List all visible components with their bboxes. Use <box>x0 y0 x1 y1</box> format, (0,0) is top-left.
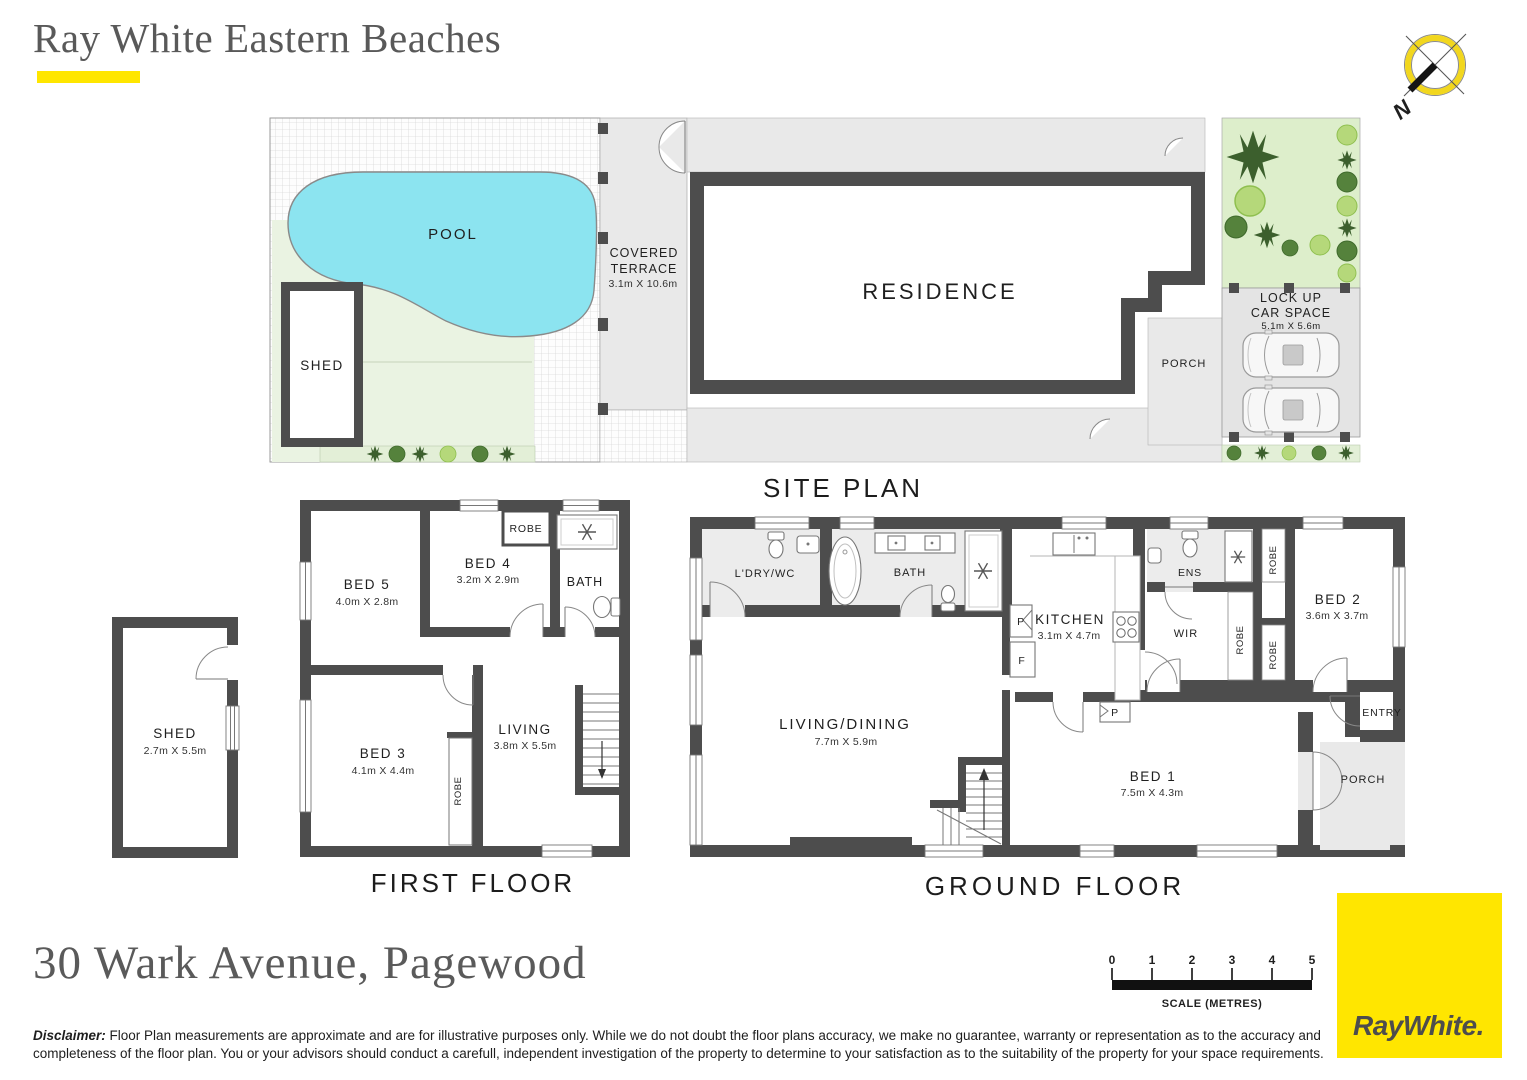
bed3-dims: 4.1m X 4.4m <box>352 765 415 777</box>
scale-tick: 5 <box>1309 953 1316 967</box>
shed-label: SHED <box>153 726 197 741</box>
site-yard: POOL SHED <box>270 118 600 462</box>
raywhite-logo-text: RayWhite. <box>1353 1010 1484 1042</box>
living-label: LIVING <box>498 722 551 737</box>
covered-terrace: COVERED TERRACE 3.1m X 10.6m <box>598 118 687 462</box>
bed2-dims: 3.6m X 3.7m <box>1306 610 1369 622</box>
car-icon <box>1243 385 1339 435</box>
car-icon <box>1243 330 1339 380</box>
pantry2-label: P <box>1111 707 1119 719</box>
scale-tick: 0 <box>1109 953 1116 967</box>
outbuilding-shed: SHED 2.7m X 5.5m <box>112 617 239 858</box>
scale-tick: 1 <box>1149 953 1156 967</box>
floorplan-page: Ray White Eastern Beaches N <box>0 0 1527 1080</box>
robe-label: ROBE <box>1235 626 1246 655</box>
ground-floor-walls <box>690 517 1405 857</box>
bed1-label: BED 1 <box>1130 769 1177 784</box>
fridge-label: F <box>1018 655 1025 667</box>
robe-label: ROBE <box>510 523 543 535</box>
kitchen-label: KITCHEN <box>1035 612 1105 627</box>
residence-label: RESIDENCE <box>862 279 1017 304</box>
kitchen-dims: 3.1m X 4.7m <box>1038 630 1101 642</box>
scale-tick: 2 <box>1189 953 1196 967</box>
living-dining-label: LIVING/DINING <box>779 716 911 733</box>
car-space: LOCK UP CAR SPACE 5.1m X 5.6m <box>1222 283 1360 462</box>
robe-label: ROBE <box>1268 546 1279 575</box>
raywhite-logo: RayWhite. <box>1337 893 1502 1058</box>
living-dims: 3.8m X 5.5m <box>494 740 557 752</box>
compass-icon: N <box>1390 18 1485 123</box>
carspace-label-2: CAR SPACE <box>1251 306 1331 320</box>
porch-label: PORCH <box>1341 774 1386 786</box>
ens-label: ENS <box>1178 567 1202 579</box>
brand-underline <box>37 71 140 83</box>
shed-dims: 2.7m X 5.5m <box>144 745 207 757</box>
vanity-icon <box>875 533 955 553</box>
disclaimer-label: Disclaimer: <box>33 1028 106 1043</box>
bed2-label: BED 2 <box>1315 592 1362 607</box>
ldry-label: L'DRY/WC <box>735 568 796 580</box>
terrace-label-2: TERRACE <box>611 262 678 276</box>
ground-floor-title: GROUND FLOOR <box>905 871 1205 902</box>
property-address: 30 Wark Avenue, Pagewood <box>33 936 587 990</box>
site-plan: POOL SHED <box>268 115 1363 465</box>
pantry-label: P <box>1017 616 1025 628</box>
robe-label: ROBE <box>1268 641 1279 670</box>
bed1-dims: 7.5m X 4.3m <box>1121 787 1184 799</box>
rear-garden <box>1222 118 1360 288</box>
toilet-icon <box>594 597 621 618</box>
site-shed-label: SHED <box>300 358 344 373</box>
bed5-dims: 4.0m X 2.8m <box>336 596 399 608</box>
first-floor-walls <box>300 500 630 857</box>
terrace-label-1: COVERED <box>610 246 679 260</box>
bed3-label: BED 3 <box>360 746 407 761</box>
living-dining-dims: 7.7m X 5.9m <box>815 736 878 748</box>
carspace-label-1: LOCK UP <box>1260 291 1322 305</box>
first-floor-plan: SHED 2.7m X 5.5m <box>95 495 650 900</box>
ground-floor-plan: L'DRY/WC BATH KITCHEN 3.1m X 4.7m P F P … <box>685 500 1415 870</box>
entry-label: ENTRY <box>1362 707 1401 719</box>
bath-label: BATH <box>567 575 603 589</box>
residence-block: RESIDENCE PORCH <box>687 118 1222 462</box>
first-floor-title: FIRST FLOOR <box>323 868 623 899</box>
scale-tick: 4 <box>1269 953 1276 967</box>
shower <box>557 515 617 549</box>
bed5-label: BED 5 <box>344 577 391 592</box>
robe-label: ROBE <box>453 777 464 806</box>
disclaimer-text: Disclaimer: Floor Plan measurements are … <box>33 1027 1327 1063</box>
bathtub-icon <box>829 537 861 605</box>
wir-label: WIR <box>1174 628 1198 640</box>
bath-label: BATH <box>894 567 927 579</box>
site-porch-label: PORCH <box>1162 358 1207 370</box>
bed4-label: BED 4 <box>465 556 512 571</box>
scale-caption: SCALE (METRES) <box>1162 998 1263 1010</box>
scale-tick: 3 <box>1229 953 1236 967</box>
pool-label: POOL <box>428 226 478 243</box>
terrace-dims: 3.1m X 10.6m <box>609 278 678 290</box>
bed4-dims: 3.2m X 2.9m <box>457 574 520 586</box>
agency-title: Ray White Eastern Beaches <box>33 14 501 62</box>
scale-bar: 0 1 2 3 4 5 SCALE (METRES) <box>1100 952 1330 1014</box>
north-label: N <box>1390 93 1418 123</box>
